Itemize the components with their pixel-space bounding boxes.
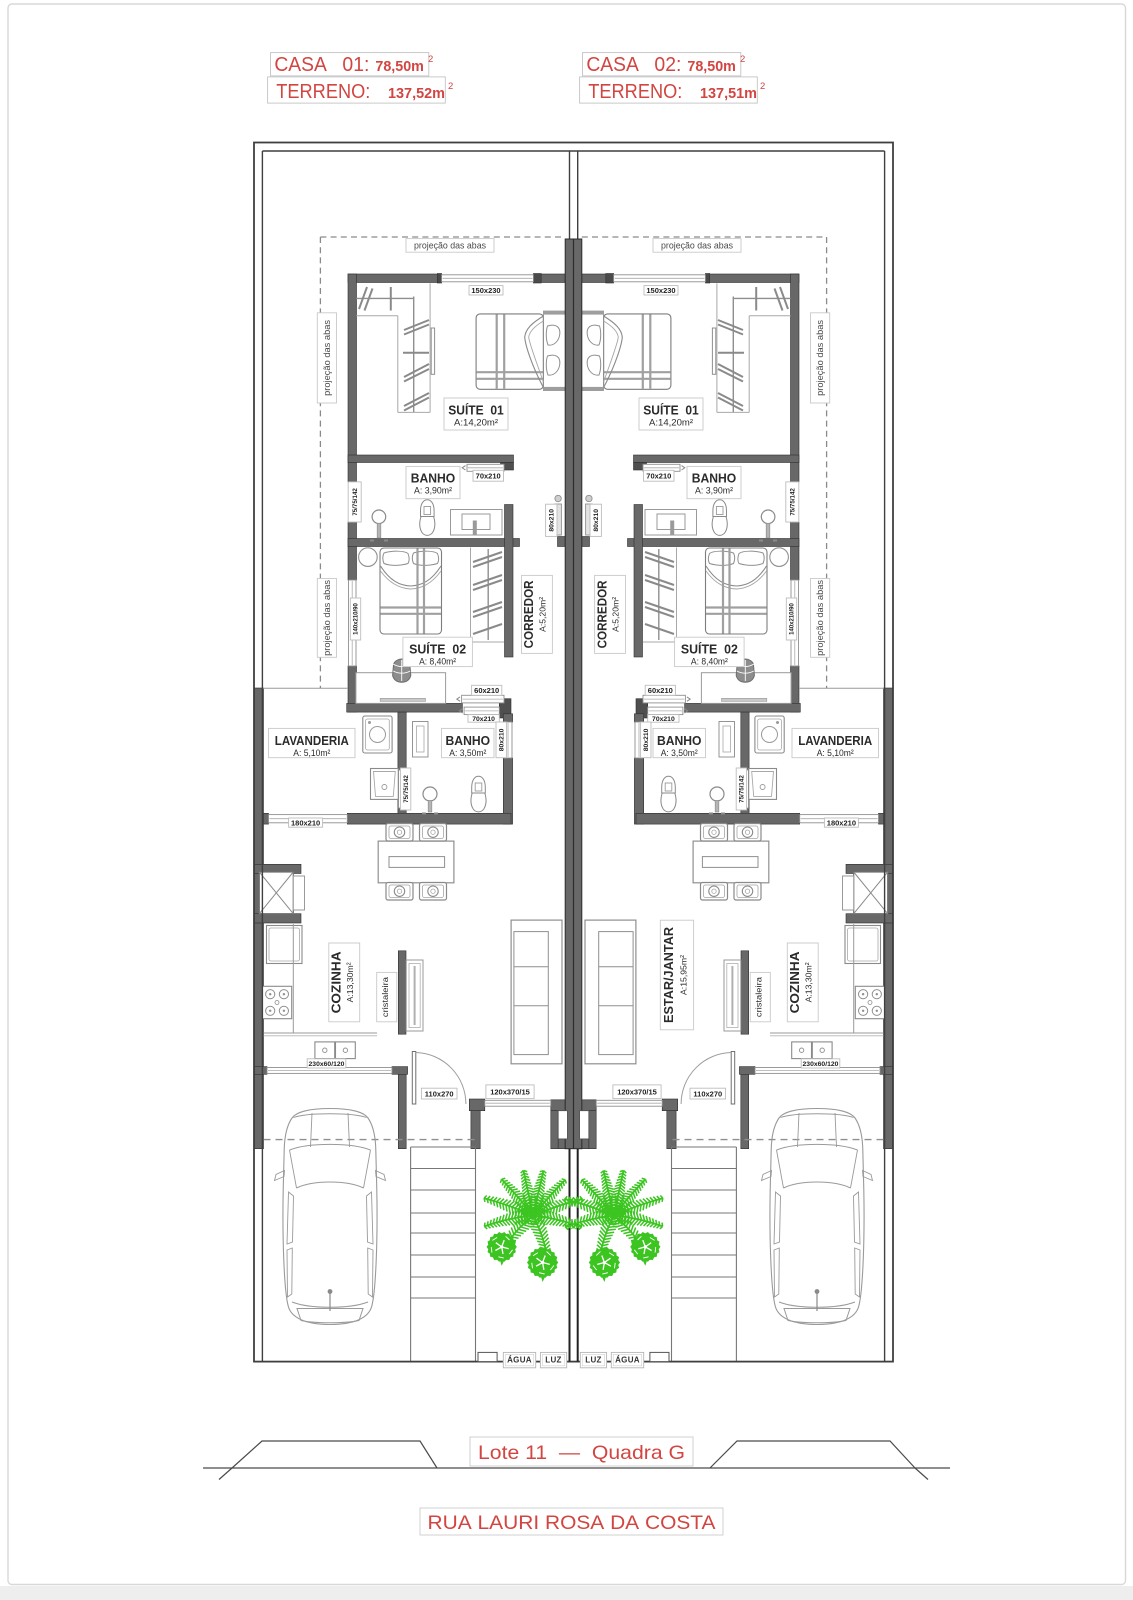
svg-text:BANHO: BANHO [446, 733, 491, 748]
svg-text:75/75/142: 75/75/142 [790, 488, 797, 516]
svg-text:projeção das abas: projeção das abas [815, 319, 825, 396]
svg-text:180x210: 180x210 [291, 818, 320, 827]
svg-text:80x210: 80x210 [499, 728, 506, 751]
svg-text:CASA: CASA [586, 54, 639, 76]
svg-text:BANHO: BANHO [692, 470, 737, 485]
svg-text:CASA: CASA [274, 54, 327, 76]
svg-text:BANHO: BANHO [657, 733, 702, 748]
svg-text:150x230: 150x230 [471, 286, 500, 295]
svg-text:180x210: 180x210 [827, 818, 856, 827]
svg-text:140x210/90: 140x210/90 [790, 602, 796, 634]
svg-text:01:: 01: [342, 54, 369, 76]
svg-text:2: 2 [740, 54, 745, 65]
svg-text:120x370/15: 120x370/15 [490, 1088, 530, 1097]
svg-text:70x210: 70x210 [476, 471, 501, 480]
svg-text:projeção das abas: projeção das abas [322, 319, 332, 396]
svg-text:TERRENO:: TERRENO: [276, 81, 370, 103]
svg-text:ESTAR/JANTAR: ESTAR/JANTAR [662, 927, 676, 1023]
svg-text:LUZ: LUZ [585, 1356, 601, 1365]
svg-text:2: 2 [448, 81, 453, 92]
svg-text:CORREDOR: CORREDOR [595, 580, 609, 648]
svg-text:COZINHA: COZINHA [330, 951, 344, 1013]
svg-text:LAVANDERIA: LAVANDERIA [798, 733, 873, 748]
svg-text:A:15,95m²: A:15,95m² [678, 955, 688, 995]
svg-text:cristaleira: cristaleira [380, 977, 390, 1017]
svg-text:SUÍTE 02: SUÍTE 02 [681, 642, 738, 657]
svg-text:A:13,30m²: A:13,30m² [803, 962, 813, 1002]
svg-text:A: 5,10m²: A: 5,10m² [817, 748, 854, 759]
svg-text:SUÍTE 01: SUÍTE 01 [448, 403, 504, 418]
svg-text:BANHO: BANHO [411, 470, 456, 485]
svg-text:LAVANDERIA: LAVANDERIA [275, 733, 350, 748]
svg-text:140x210/90: 140x210/90 [354, 602, 360, 634]
svg-text:projeção das abas: projeção das abas [414, 240, 486, 251]
svg-text:78,50m: 78,50m [375, 58, 424, 75]
svg-text:2: 2 [760, 81, 765, 92]
svg-text:projeção das abas: projeção das abas [322, 579, 332, 656]
svg-text:LUZ: LUZ [545, 1356, 561, 1365]
svg-text:A:5,20m²: A:5,20m² [538, 597, 548, 632]
svg-text:A:5,20m²: A:5,20m² [611, 597, 621, 632]
svg-text:80x210: 80x210 [549, 509, 556, 532]
svg-text:110x270: 110x270 [693, 1089, 722, 1098]
svg-text:150x230: 150x230 [646, 286, 675, 295]
svg-text:Lote 11 — Quadra G: Lote 11 — Quadra G [478, 1442, 685, 1464]
svg-text:60x210: 60x210 [648, 686, 673, 695]
svg-text:78,50m: 78,50m [687, 58, 736, 75]
svg-text:SUÍTE 02: SUÍTE 02 [409, 642, 466, 657]
svg-text:projeção das abas: projeção das abas [815, 579, 825, 656]
svg-text:80x210: 80x210 [643, 728, 650, 751]
svg-text:A: 8,40m²: A: 8,40m² [419, 657, 456, 668]
svg-text:137,52m: 137,52m [388, 85, 445, 102]
svg-text:230x60/120: 230x60/120 [803, 1061, 839, 1068]
svg-text:60x210: 60x210 [474, 686, 499, 695]
svg-text:TERRENO:: TERRENO: [588, 81, 682, 103]
svg-text:75/75/142: 75/75/142 [739, 775, 746, 803]
svg-text:SUÍTE 01: SUÍTE 01 [643, 403, 699, 418]
svg-text:02:: 02: [654, 54, 681, 76]
svg-text:A: 3,50m²: A: 3,50m² [661, 748, 698, 759]
svg-text:A: 5,10m²: A: 5,10m² [293, 748, 330, 759]
svg-text:projeção das abas: projeção das abas [661, 240, 733, 251]
svg-text:A: 3,50m²: A: 3,50m² [449, 748, 486, 759]
svg-text:230x60/120: 230x60/120 [309, 1061, 345, 1068]
svg-text:70x210: 70x210 [472, 716, 495, 723]
svg-text:ÁGUA: ÁGUA [507, 1356, 532, 1365]
svg-text:137,51m: 137,51m [700, 85, 757, 102]
svg-text:A: 8,40m²: A: 8,40m² [691, 657, 728, 668]
svg-text:COZINHA: COZINHA [788, 951, 802, 1013]
svg-text:70x210: 70x210 [646, 471, 671, 480]
svg-text:110x270: 110x270 [425, 1089, 454, 1098]
svg-text:120x370/15: 120x370/15 [617, 1088, 657, 1097]
svg-text:RUA LAURI ROSA DA COSTA: RUA LAURI ROSA DA COSTA [428, 1512, 716, 1534]
svg-text:cristaleira: cristaleira [753, 977, 763, 1017]
svg-text:A:14,20m²: A:14,20m² [454, 418, 498, 429]
svg-text:75/75/142: 75/75/142 [352, 488, 359, 516]
svg-text:2: 2 [428, 54, 433, 65]
svg-text:80x210: 80x210 [593, 509, 600, 532]
svg-text:A:14,20m²: A:14,20m² [649, 418, 693, 429]
svg-text:70x210: 70x210 [652, 716, 675, 723]
svg-text:CORREDOR: CORREDOR [522, 580, 536, 648]
svg-text:ÁGUA: ÁGUA [615, 1356, 640, 1365]
svg-text:75/75/142: 75/75/142 [403, 775, 410, 803]
svg-text:A: 3,90m²: A: 3,90m² [695, 485, 733, 496]
svg-text:A: 3,90m²: A: 3,90m² [414, 485, 452, 496]
svg-text:A:13,30m²: A:13,30m² [345, 962, 355, 1002]
